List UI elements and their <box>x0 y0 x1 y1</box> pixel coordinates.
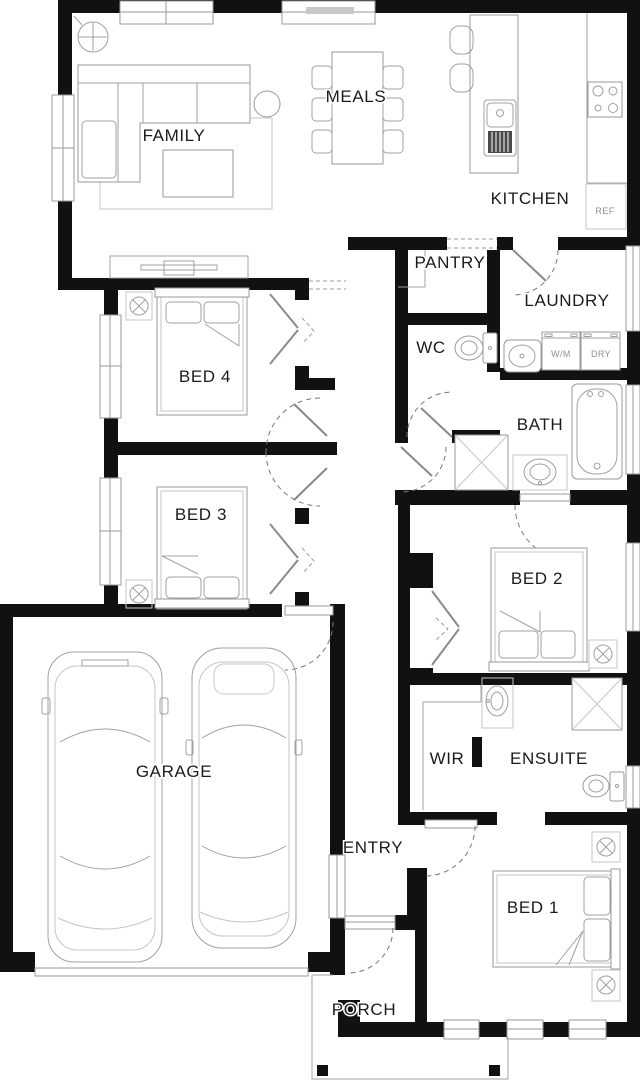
bed2-bed <box>489 548 589 671</box>
dining-table <box>332 52 383 164</box>
bed3-robe-bifold <box>270 524 314 594</box>
floor-plan: REF W/M DRY <box>0 0 640 1083</box>
room-label-kitchen: KITCHEN <box>491 189 570 208</box>
window-bed3-left <box>100 478 121 585</box>
wm-label: W/M <box>551 349 571 359</box>
front-door <box>345 916 395 973</box>
garage-door <box>35 968 308 976</box>
porch-post <box>489 1065 500 1076</box>
garage-area <box>35 648 308 976</box>
garage-internal-door <box>285 606 333 670</box>
wc-toilet <box>455 333 497 363</box>
laundry-area: W/M DRY <box>455 332 620 372</box>
bath-area <box>455 384 622 490</box>
coffee-table <box>163 150 233 197</box>
bath-shower <box>455 435 508 490</box>
room-label-wir: WIR <box>430 749 465 768</box>
ensuite-vanity <box>482 678 513 728</box>
ceiling-fan-icon <box>74 16 108 52</box>
window-entry-side <box>329 855 345 918</box>
room-label-bed4: BED 4 <box>179 367 231 386</box>
wardrobes <box>270 250 481 810</box>
bed1-bed <box>493 869 620 969</box>
room-label-porch: PORCH <box>332 1000 396 1019</box>
laundry-door <box>513 250 558 295</box>
car <box>186 648 302 948</box>
wc-door <box>407 392 452 437</box>
ensuite-shower <box>572 678 622 730</box>
room-label-wc: WC <box>416 338 446 357</box>
pantry-opening <box>447 239 497 248</box>
bath-vanity <box>513 455 567 490</box>
cooktop <box>588 82 622 117</box>
downlight-icon <box>589 640 617 668</box>
car <box>42 652 168 962</box>
meals-area <box>312 52 403 164</box>
window-family-left <box>52 95 74 201</box>
side-table <box>254 91 280 117</box>
hall-opening <box>309 281 346 289</box>
room-label-laundry: LAUNDRY <box>524 291 609 310</box>
tv-unit <box>110 256 248 278</box>
downlight-icon <box>126 580 152 608</box>
room-label-bed2: BED 2 <box>511 569 563 588</box>
ref-label: REF <box>595 206 614 216</box>
fridge-space: REF <box>586 184 626 229</box>
bed3-door <box>266 452 327 506</box>
bed2-robe-bifold <box>432 591 459 665</box>
bed4-bed <box>155 288 249 415</box>
window-bath-right <box>626 385 640 474</box>
room-label-pantry: PANTRY <box>415 253 486 272</box>
laundry-tub <box>504 340 541 372</box>
window-bed4-left <box>100 315 121 418</box>
bed4-robe-bifold <box>270 294 314 364</box>
downlight-icon <box>592 832 620 862</box>
room-label-garage: GARAGE <box>136 762 212 781</box>
window-top-meals <box>282 1 375 24</box>
room-label-bath: BATH <box>517 415 563 434</box>
dryer: DRY <box>581 332 620 370</box>
ensuite-toilet <box>583 772 624 801</box>
room-label-family: FAMILY <box>143 126 206 145</box>
dry-label: DRY <box>591 349 611 359</box>
downlight-icon <box>126 292 152 320</box>
washing-machine: W/M <box>542 332 580 370</box>
window-top-family <box>120 1 213 24</box>
room-label-entry: ENTRY <box>343 838 403 857</box>
porch-post <box>317 1065 328 1076</box>
hall-bed1-door <box>425 820 477 876</box>
window-ensuite-right <box>626 766 640 808</box>
room-label-bed3: BED 3 <box>175 505 227 524</box>
window-laundry-right <box>626 246 640 331</box>
window-bed2-right <box>626 543 640 631</box>
windows-bed1-bottom <box>444 1020 606 1039</box>
bath-door <box>401 447 446 492</box>
ensuite-area <box>482 678 624 801</box>
family-room <box>74 16 280 278</box>
room-label-bed1: BED 1 <box>507 898 559 917</box>
downlight-icon <box>592 970 620 1001</box>
bathtub <box>572 384 622 479</box>
room-label-meals: MEALS <box>326 87 387 106</box>
room-label-ensuite: ENSUITE <box>510 749 588 768</box>
